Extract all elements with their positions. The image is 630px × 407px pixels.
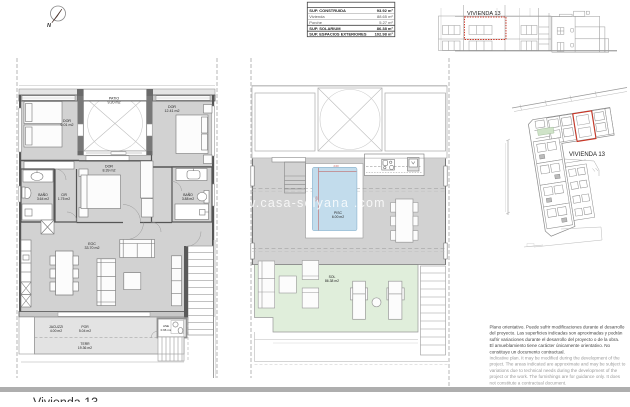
svg-text:93.92 m²: 93.92 m² — [377, 8, 394, 13]
svg-text:33.70 m2: 33.70 m2 — [85, 246, 100, 250]
svg-text:constituye un documento contra: constituye un documento contractual. — [490, 349, 565, 354]
svg-text:9.01 m2: 9.01 m2 — [61, 123, 74, 127]
svg-text:Plano orientativo. Puede sufri: Plano orientativo. Puede sufrir modifica… — [490, 325, 625, 330]
svg-text:88.65 m²: 88.65 m² — [377, 14, 393, 19]
svg-text:SUP. CONSTRUIDA: SUP. CONSTRUIDA — [309, 8, 346, 13]
svg-text:Vivienda: Vivienda — [309, 14, 325, 19]
svg-text:9.20 m2: 9.20 m2 — [108, 101, 121, 105]
svg-text:VIVIENDA 13: VIVIENDA 13 — [569, 152, 606, 158]
svg-text:Indicative plan. It may be mod: Indicative plan. It may be modified duri… — [490, 356, 621, 361]
svg-text:SUP. SOLARIUM: SUP. SOLARIUM — [309, 26, 341, 31]
svg-text:sufrir variaciones durante el: sufrir variaciones durante el desarrollo… — [490, 337, 620, 342]
svg-text:El amueblamiento tiene carácte: El amueblamiento tiene carácter únicamen… — [490, 343, 611, 348]
svg-text:102.98 m²: 102.98 m² — [375, 32, 394, 37]
svg-text:3.64 m2: 3.64 m2 — [37, 197, 49, 201]
svg-text:del proyecto. Las superficies: del proyecto. Las superficies indicadas … — [490, 331, 623, 336]
svg-text:3.88 m2: 3.88 m2 — [182, 197, 194, 201]
svg-text:86.38 m2: 86.38 m2 — [325, 279, 339, 283]
svg-text:4.00 m2: 4.00 m2 — [50, 329, 62, 333]
svg-text:ww.casa-solyan: ww.casa-solyan — [235, 196, 340, 210]
svg-text:86.38 m²: 86.38 m² — [377, 26, 394, 31]
svg-text:Porche: Porche — [309, 20, 322, 25]
svg-text:project. The areas indicated a: project. The areas indicated are approxi… — [490, 362, 626, 367]
svg-text:VIVIENDA 13: VIVIENDA 13 — [467, 11, 501, 17]
svg-text:6.00 m2: 6.00 m2 — [332, 215, 344, 219]
svg-text:0.96 m2: 0.96 m2 — [161, 328, 172, 332]
svg-text:2.00: 2.00 — [333, 164, 339, 168]
svg-text:12.41 m2: 12.41 m2 — [165, 109, 180, 113]
svg-text:5.27 m²: 5.27 m² — [379, 20, 393, 25]
svg-text:Vivienda 13: Vivienda 13 — [33, 396, 98, 403]
svg-text:variations due to technical ne: variations due to technical needs during… — [490, 368, 618, 373]
svg-text:not constitute a contractual d: not constitute a contractual document. — [490, 380, 567, 385]
svg-text:project or the work. The furni: project or the work. The furnishings are… — [490, 374, 621, 379]
svg-text:5.04 m2: 5.04 m2 — [79, 329, 91, 333]
svg-text:SUP. ESPACIOS EXTERIORES: SUP. ESPACIOS EXTERIORES — [309, 32, 367, 37]
svg-text:a .com: a .com — [341, 196, 386, 210]
svg-text:8.39 m2: 8.39 m2 — [103, 169, 116, 173]
svg-text:1.75 m2: 1.75 m2 — [58, 197, 70, 201]
svg-text:19.36 m2: 19.36 m2 — [78, 346, 92, 350]
